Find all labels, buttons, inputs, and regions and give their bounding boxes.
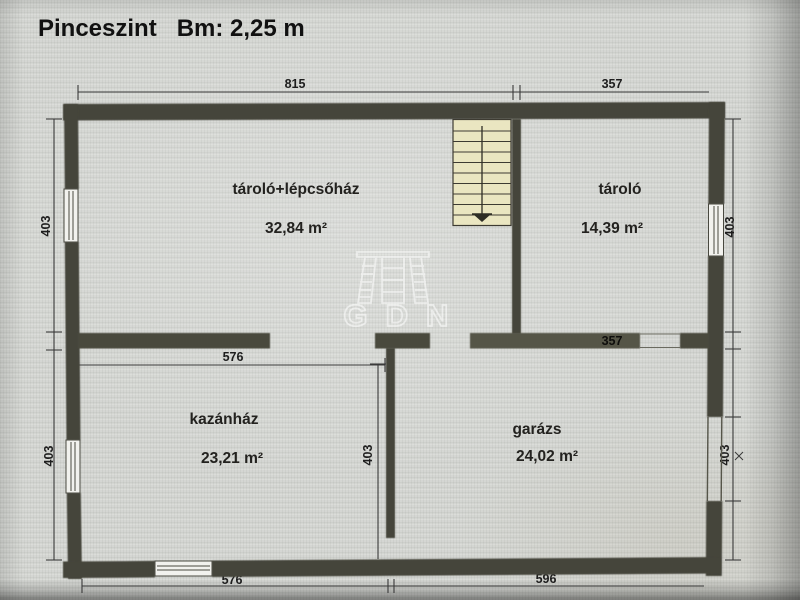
svg-text:403: 403 [39,216,53,237]
svg-text:576: 576 [223,350,244,364]
svg-text:14,39 m²: 14,39 m² [581,220,643,237]
svg-text:403: 403 [718,445,732,466]
svg-text:23,21 m²: 23,21 m² [201,450,263,467]
svg-text:403: 403 [723,217,737,238]
svg-text:815: 815 [285,77,306,91]
svg-text:tároló+lépcsőház: tároló+lépcsőház [232,181,359,198]
svg-text:32,84 m²: 32,84 m² [265,220,327,237]
svg-text:403: 403 [361,445,375,466]
svg-text:357: 357 [602,334,623,348]
svg-text:tároló: tároló [598,181,641,198]
svg-text:kazánház: kazánház [190,411,259,428]
svg-text:403: 403 [42,446,56,467]
svg-text:357: 357 [602,77,623,91]
svg-text:GDN: GDN [344,298,467,333]
svg-text:garázs: garázs [512,421,561,438]
svg-text:Pinceszint Bm: 2,25 m: Pinceszint Bm: 2,25 m [38,15,305,42]
svg-text:24,02 m²: 24,02 m² [516,448,578,465]
